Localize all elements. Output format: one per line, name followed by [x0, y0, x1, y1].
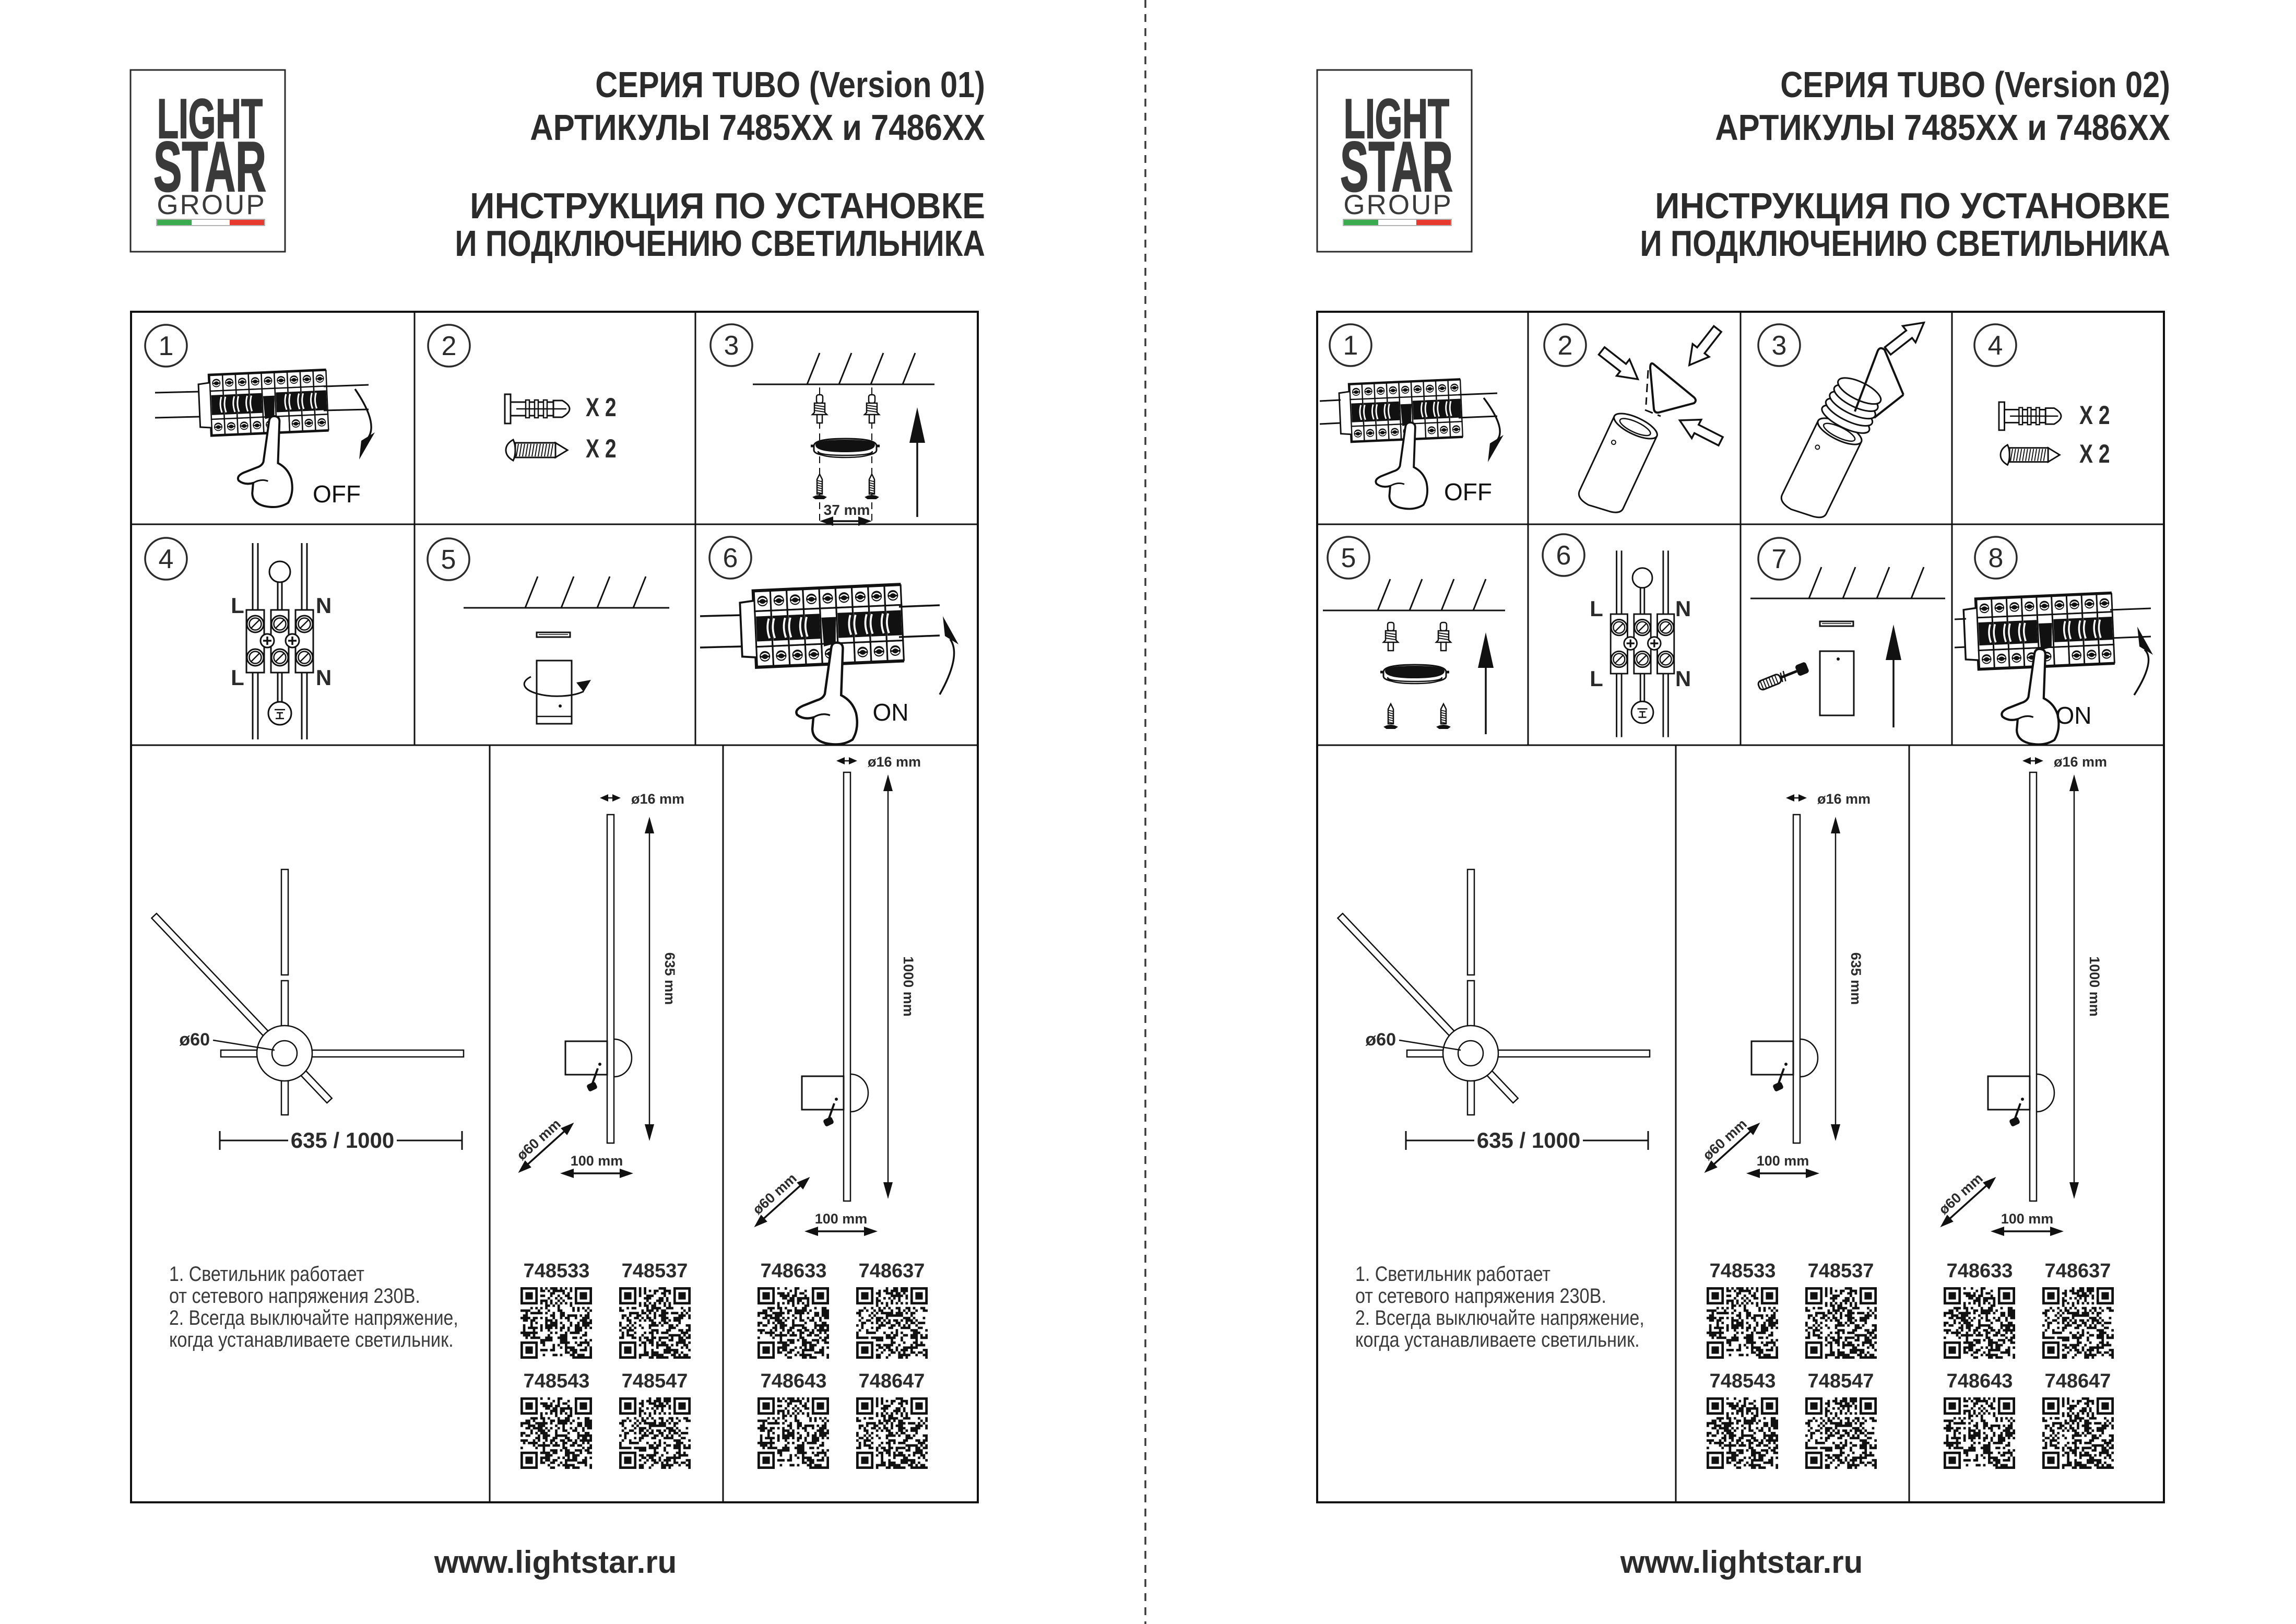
- svg-text:748537: 748537: [622, 1260, 688, 1282]
- svg-text:ø16 mm: ø16 mm: [631, 791, 684, 807]
- svg-text:ø60: ø60: [179, 1030, 210, 1050]
- svg-text:2. Всегда выключайте напряжени: 2. Всегда выключайте напряжение,: [169, 1305, 458, 1329]
- svg-text:N: N: [1675, 666, 1691, 691]
- svg-text:ø16 mm: ø16 mm: [868, 754, 921, 770]
- svg-text:когда устанавливаете светильни: когда устанавливаете светильник.: [169, 1328, 454, 1351]
- svg-text:www.lightstar.ru: www.lightstar.ru: [1620, 1545, 1863, 1580]
- svg-text:1: 1: [1343, 331, 1358, 361]
- svg-text:N: N: [316, 665, 332, 690]
- svg-text:100 mm: 100 mm: [815, 1211, 868, 1227]
- svg-text:L: L: [1590, 666, 1603, 691]
- svg-text:4: 4: [159, 544, 174, 574]
- svg-text:6: 6: [1556, 540, 1571, 571]
- svg-text:748533: 748533: [524, 1260, 590, 1282]
- svg-text:2: 2: [442, 331, 457, 361]
- svg-text:748637: 748637: [859, 1260, 925, 1282]
- svg-text:748647: 748647: [859, 1370, 925, 1392]
- svg-text:37 mm: 37 mm: [824, 502, 870, 518]
- svg-text:И ПОДКЛЮЧЕНИЮ СВЕТИЛЬНИКА: И ПОДКЛЮЧЕНИЮ СВЕТИЛЬНИКА: [455, 222, 985, 264]
- svg-text:X 2: X 2: [586, 392, 617, 422]
- svg-text:ON: ON: [2056, 702, 2092, 729]
- svg-text:АРТИКУЛЫ 7485ХХ и 7486ХХ: АРТИКУЛЫ 7485ХХ и 7486ХХ: [1715, 107, 2170, 148]
- svg-text:5: 5: [1341, 543, 1356, 573]
- svg-text:1000 mm: 1000 mm: [901, 956, 916, 1017]
- svg-text:L: L: [231, 593, 244, 618]
- svg-text:www.lightstar.ru: www.lightstar.ru: [434, 1545, 677, 1580]
- svg-text:6: 6: [723, 543, 738, 573]
- svg-text:7: 7: [1772, 544, 1787, 574]
- svg-text:1: 1: [159, 331, 174, 361]
- svg-text:ИНСТРУКЦИЯ ПО УСТАНОВКЕ: ИНСТРУКЦИЯ ПО УСТАНОВКЕ: [470, 185, 985, 226]
- svg-text:748633: 748633: [761, 1260, 827, 1282]
- svg-text:635 / 1000: 635 / 1000: [291, 1128, 395, 1152]
- svg-text:АРТИКУЛЫ 7485ХХ и 7486ХХ: АРТИКУЛЫ 7485ХХ и 7486ХХ: [530, 107, 985, 148]
- svg-text:X 2: X 2: [2079, 400, 2110, 430]
- svg-text:OFF: OFF: [1444, 478, 1492, 505]
- svg-text:8: 8: [1989, 543, 2004, 573]
- svg-text:СЕРИЯ TUBO (Version 02): СЕРИЯ TUBO (Version 02): [1780, 64, 2170, 105]
- svg-text:5: 5: [441, 545, 456, 575]
- svg-text:СЕРИЯ TUBO (Version 01): СЕРИЯ TUBO (Version 01): [595, 64, 985, 105]
- svg-text:от сетевого напряжения 230В.: от сетевого напряжения 230В.: [169, 1284, 420, 1307]
- svg-text:635 mm: 635 mm: [662, 952, 678, 1005]
- svg-text:748547: 748547: [622, 1370, 688, 1392]
- svg-text:ИНСТРУКЦИЯ ПО УСТАНОВКЕ: ИНСТРУКЦИЯ ПО УСТАНОВКЕ: [1655, 185, 2170, 226]
- svg-text:748643: 748643: [761, 1370, 827, 1392]
- svg-text:L: L: [1590, 596, 1603, 621]
- svg-text:И ПОДКЛЮЧЕНИЮ СВЕТИЛЬНИКА: И ПОДКЛЮЧЕНИЮ СВЕТИЛЬНИКА: [1640, 222, 2170, 264]
- svg-text:X 2: X 2: [2079, 439, 2110, 468]
- svg-text:3: 3: [724, 331, 739, 361]
- svg-text:N: N: [316, 593, 332, 618]
- svg-text:100 mm: 100 mm: [571, 1153, 623, 1169]
- svg-text:ON: ON: [873, 699, 909, 726]
- svg-text:X 2: X 2: [586, 433, 617, 463]
- svg-text:L: L: [231, 665, 244, 690]
- svg-text:748543: 748543: [524, 1370, 590, 1392]
- svg-text:3: 3: [1772, 331, 1787, 361]
- svg-text:N: N: [1675, 596, 1691, 621]
- svg-text:1. Светильник работает: 1. Светильник работает: [169, 1262, 364, 1285]
- svg-text:OFF: OFF: [313, 480, 361, 508]
- svg-text:4: 4: [1988, 331, 2003, 361]
- svg-text:2: 2: [1558, 331, 1573, 361]
